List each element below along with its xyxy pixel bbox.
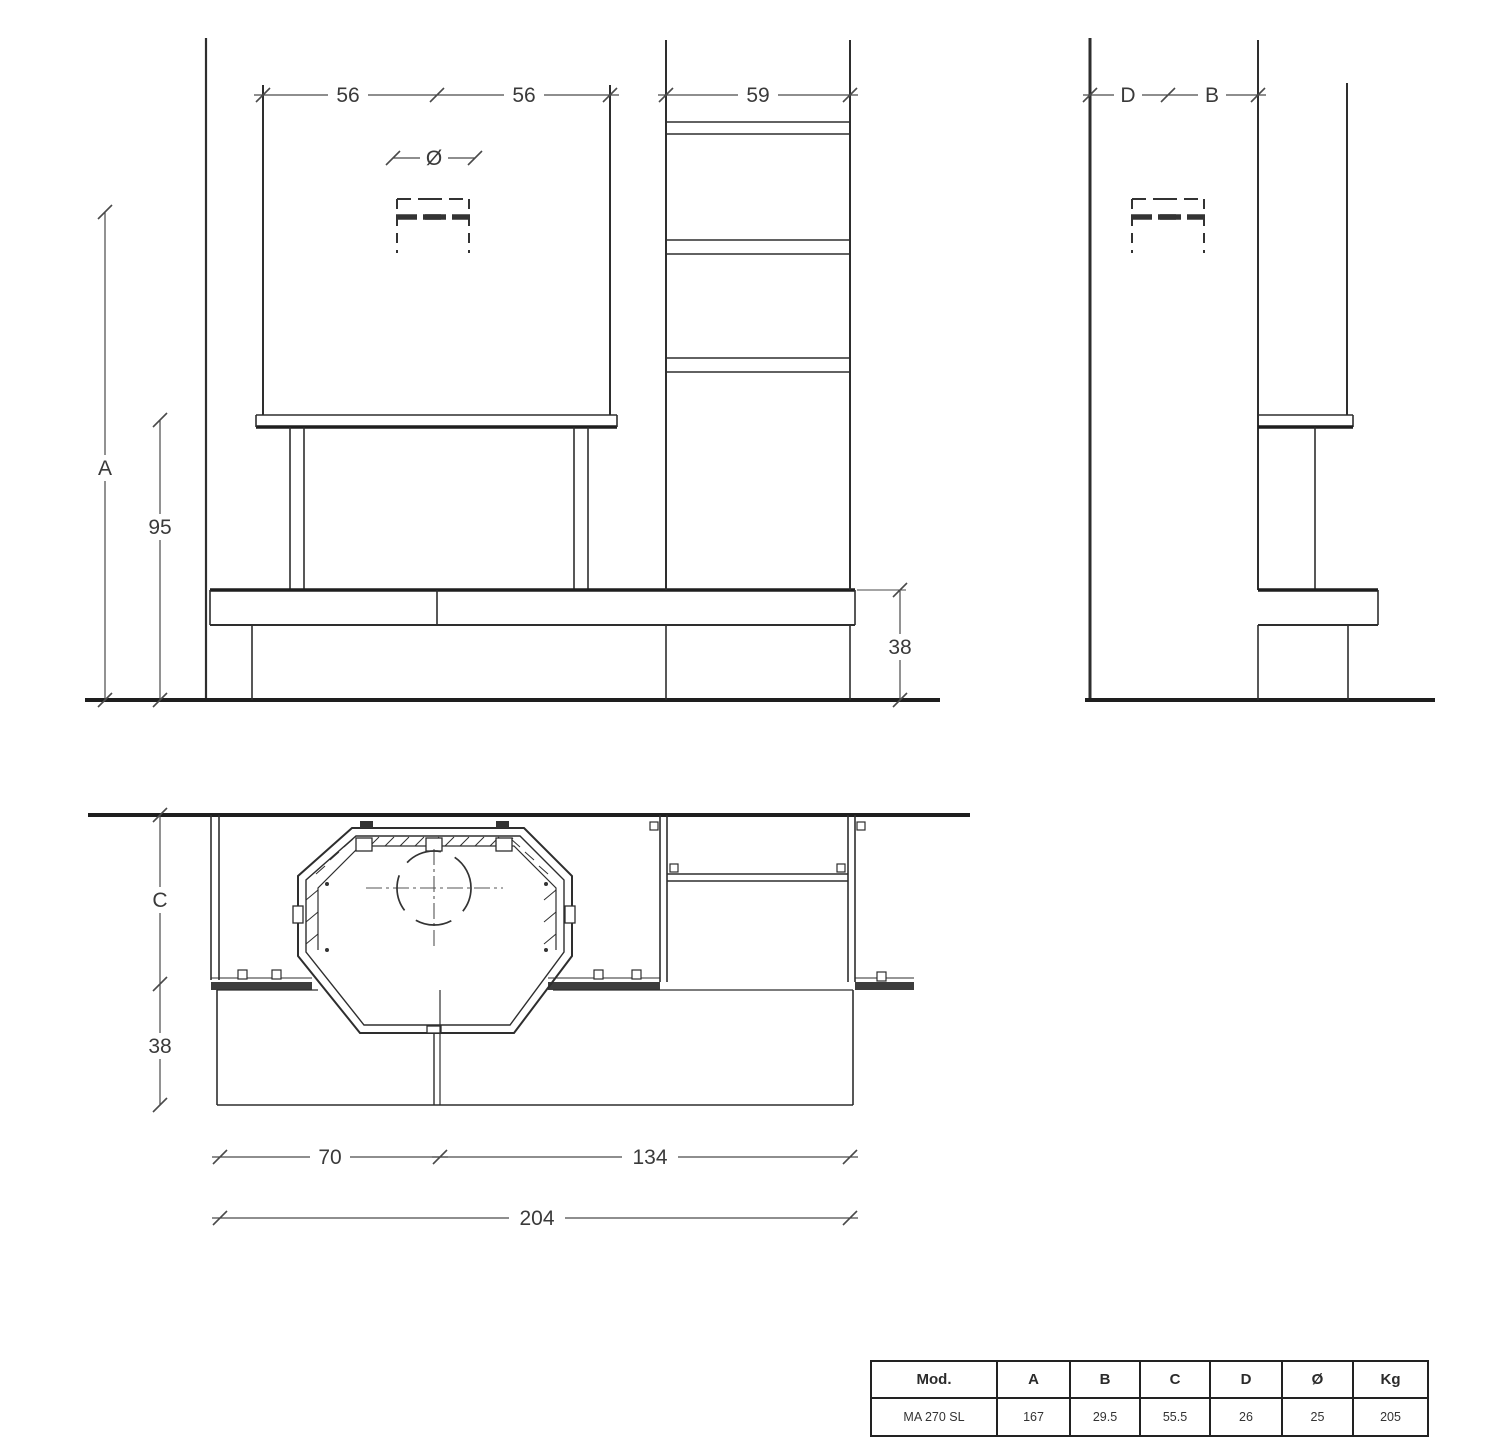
label-body-depth: C: [146, 887, 174, 913]
firebox-opening: [318, 846, 556, 950]
dim-204: 204: [519, 1207, 554, 1230]
side-view-dimensions: [1083, 88, 1266, 102]
col-header-c: C: [1140, 1361, 1210, 1398]
dim-59: 59: [746, 84, 769, 107]
label-hood-width-left: 56: [328, 82, 368, 108]
label-flue-diameter: Ø: [422, 145, 446, 171]
cell-model: MA 270 SL: [871, 1398, 997, 1436]
col-header-d: D: [1210, 1361, 1282, 1398]
plan-view: [88, 815, 970, 1105]
dim-70: 70: [318, 1146, 341, 1169]
dim-A: A: [98, 457, 112, 480]
dim-56-right: 56: [512, 84, 535, 107]
label-total-height: A: [91, 455, 119, 481]
cell-d: 26: [1210, 1398, 1282, 1436]
flue-outlet-dashed-symbol: [396, 199, 470, 253]
dim-D: D: [1120, 84, 1135, 107]
cell-a: 167: [997, 1398, 1070, 1436]
cell-c: 55.5: [1140, 1398, 1210, 1436]
spec-table-data-row: MA 270 SL 167 29.5 55.5 26 25 205: [871, 1398, 1428, 1436]
dim-B: B: [1205, 84, 1219, 107]
label-right-section-width: 134: [622, 1144, 678, 1170]
label-left-section-width: 70: [310, 1144, 350, 1170]
dim-38-front: 38: [888, 636, 911, 659]
cell-kg: 205: [1353, 1398, 1428, 1436]
label-depth-front: B: [1198, 82, 1226, 108]
label-hood-bottom-height: 95: [140, 514, 180, 540]
label-bench-depth: 38: [140, 1033, 180, 1059]
dim-56-left: 56: [336, 84, 359, 107]
dim-flue: Ø: [426, 147, 442, 170]
col-header-b: B: [1070, 1361, 1140, 1398]
firebox-octagon-outer: [298, 828, 572, 1033]
flue-outlet-dashed-symbol-side: [1131, 199, 1205, 253]
spec-table-header-row: Mod. A B C D Ø Kg: [871, 1361, 1428, 1398]
side-view: [1085, 38, 1435, 700]
col-header-diameter: Ø: [1282, 1361, 1353, 1398]
dimension-labels: 56 56 59 A 95 38 Ø D: [91, 82, 1226, 1231]
drawing-stage: 56 56 59 A 95 38 Ø D: [0, 0, 1500, 1427]
technical-drawing: 56 56 59 A 95 38 Ø D: [0, 0, 1500, 1427]
col-header-kg: Kg: [1353, 1361, 1428, 1398]
dim-C: C: [152, 889, 167, 912]
label-total-width: 204: [509, 1205, 565, 1231]
front-view: [85, 38, 940, 700]
front-view-dimensions: [98, 88, 907, 707]
label-hood-width-right: 56: [504, 82, 544, 108]
cell-b: 29.5: [1070, 1398, 1140, 1436]
label-bench-height: 38: [880, 634, 920, 660]
dim-38-plan: 38: [148, 1035, 171, 1058]
firebox-octagon-inner: [306, 836, 564, 1025]
dim-95: 95: [148, 516, 171, 539]
label-chimney-width: 59: [738, 82, 778, 108]
cell-diameter: 25: [1282, 1398, 1353, 1436]
label-depth-back: D: [1114, 82, 1142, 108]
flue-centre-mark: [366, 849, 503, 950]
col-header-mod: Mod.: [871, 1361, 997, 1398]
dim-134: 134: [632, 1146, 667, 1169]
col-header-a: A: [997, 1361, 1070, 1398]
plan-view-dimensions: [153, 808, 858, 1225]
spec-table: Mod. A B C D Ø Kg MA 270 SL 167 29.5 55.…: [870, 1360, 1429, 1437]
